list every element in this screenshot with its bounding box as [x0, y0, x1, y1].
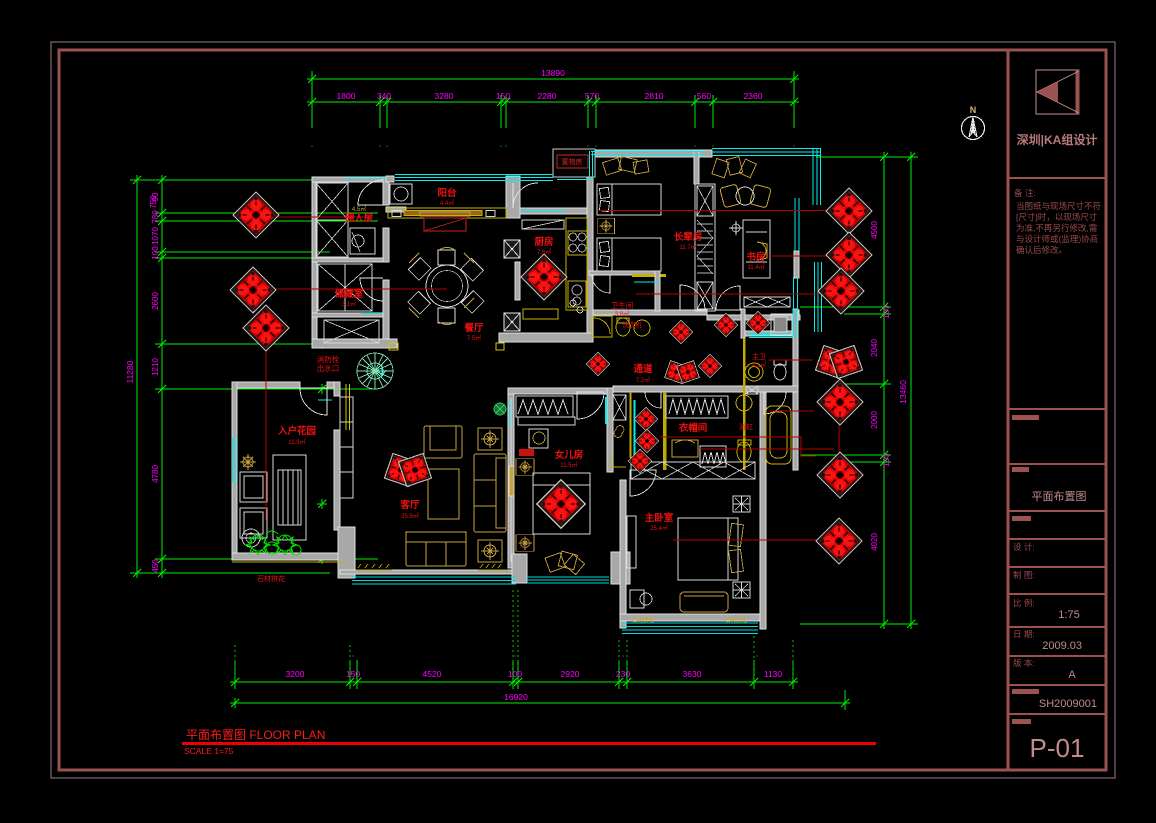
svg-text:置物房: 置物房 [562, 157, 583, 166]
svg-text:阳台: 阳台 [437, 187, 457, 199]
svg-text:版 本:: 版 本: [1013, 658, 1035, 668]
svg-text:2810: 2810 [645, 91, 664, 101]
svg-text:450: 450 [151, 559, 160, 573]
svg-text:150: 150 [346, 669, 360, 679]
svg-text:石材拼花: 石材拼花 [632, 616, 655, 624]
svg-text:长辈房: 长辈房 [674, 231, 703, 243]
svg-text:7.6㎡: 7.6㎡ [537, 248, 551, 256]
svg-text:石材拼花: 石材拼花 [257, 574, 285, 583]
svg-text:衣帽间: 衣帽间 [679, 422, 708, 434]
svg-text:深圳|KA组设计: 深圳|KA组设计 [1017, 132, 1098, 147]
svg-text:560: 560 [697, 91, 711, 101]
svg-text:当图纸与现场尺寸不符: 当图纸与现场尺寸不符 [1016, 201, 1101, 211]
svg-text:储藏室: 储藏室 [335, 288, 364, 300]
svg-text:100: 100 [508, 669, 522, 679]
svg-text:石材拼花: 石材拼花 [725, 616, 748, 624]
svg-text:主卫: 主卫 [752, 352, 766, 361]
svg-text:SCALE 1=75: SCALE 1=75 [184, 746, 234, 756]
svg-text:4020: 4020 [870, 533, 879, 551]
svg-text:厨房: 厨房 [534, 236, 553, 248]
svg-text:餐厅: 餐厅 [463, 322, 484, 334]
svg-text:A: A [1068, 669, 1076, 681]
svg-text:25.9㎡: 25.9㎡ [401, 512, 419, 520]
svg-text:1070: 1070 [151, 227, 160, 245]
svg-text:2920: 2920 [561, 669, 580, 679]
svg-text:客厅: 客厅 [399, 499, 420, 511]
svg-text:750: 750 [149, 195, 158, 209]
svg-text:出水口: 出水口 [317, 363, 340, 373]
svg-text:4500: 4500 [870, 221, 879, 239]
svg-text:780: 780 [151, 210, 160, 224]
svg-text:100: 100 [882, 453, 891, 467]
svg-text:为准,不再另行修改,需: 为准,不再另行修改,需 [1016, 223, 1097, 233]
svg-text:备 注:: 备 注: [1014, 188, 1036, 198]
svg-text:日 期:: 日 期: [1013, 629, 1035, 639]
svg-text:11280: 11280 [125, 360, 135, 383]
svg-text:2040: 2040 [870, 339, 879, 357]
svg-text:1:75: 1:75 [1058, 609, 1079, 621]
svg-text:11.7㎡: 11.7㎡ [679, 243, 696, 251]
svg-text:N: N [970, 105, 977, 115]
svg-text:佣人房: 佣人房 [344, 212, 374, 224]
svg-text:比 例:: 比 例: [1013, 598, 1035, 608]
svg-text:13460: 13460 [898, 380, 908, 404]
svg-text:230: 230 [616, 669, 630, 679]
svg-text:2000: 2000 [870, 411, 879, 429]
svg-text:4520: 4520 [423, 669, 442, 679]
svg-text:3.8㎡: 3.8㎡ [615, 310, 629, 318]
svg-text:570: 570 [585, 91, 599, 101]
svg-text:通道: 通道 [633, 363, 653, 375]
svg-text:4.5㎡: 4.5㎡ [352, 205, 366, 213]
svg-text:入户花园: 入户花园 [277, 425, 316, 437]
svg-text:3.1㎡: 3.1㎡ [342, 300, 356, 308]
svg-text:女儿房: 女儿房 [555, 449, 584, 461]
svg-text:340: 340 [377, 91, 391, 101]
svg-text:13890: 13890 [541, 68, 565, 78]
svg-text:2600: 2600 [151, 292, 160, 310]
svg-text:25.4㎡: 25.4㎡ [650, 524, 668, 532]
svg-text:[尺寸]时，以现场尺寸: [尺寸]时，以现场尺寸 [1016, 212, 1098, 222]
svg-text:150: 150 [496, 91, 510, 101]
svg-text:消防栓: 消防栓 [317, 354, 340, 364]
svg-text:洗衣机: 洗衣机 [622, 320, 642, 329]
svg-text:3630: 3630 [683, 669, 702, 679]
svg-text:平面布置图 FLOOR PLAN: 平面布置图 FLOOR PLAN [186, 728, 325, 742]
svg-text:11.9㎡: 11.9㎡ [288, 438, 305, 446]
svg-text:11.5㎡: 11.5㎡ [560, 461, 577, 469]
svg-text:浴缸: 浴缸 [739, 422, 753, 431]
svg-text:11.4㎡: 11.4㎡ [747, 263, 764, 271]
svg-text:4.1㎡: 4.1㎡ [752, 361, 766, 369]
svg-text:SH2009001: SH2009001 [1039, 698, 1097, 710]
svg-text:100: 100 [151, 246, 160, 260]
svg-text:制 图:: 制 图: [1013, 570, 1035, 580]
svg-text:4780: 4780 [151, 465, 160, 483]
svg-text:设 计:: 设 计: [1013, 542, 1035, 552]
svg-text:4.4㎡: 4.4㎡ [440, 199, 454, 207]
svg-text:2280: 2280 [538, 91, 557, 101]
svg-text:确认后修改。: 确认后修改。 [1016, 245, 1067, 255]
svg-text:16920: 16920 [504, 692, 528, 702]
svg-text:1800: 1800 [337, 91, 356, 101]
svg-text:卫生间: 卫生间 [611, 300, 634, 310]
svg-text:1130: 1130 [764, 669, 783, 679]
svg-text:2009.03: 2009.03 [1042, 640, 1082, 652]
svg-text:与设计师或(监理)协商: 与设计师或(监理)协商 [1016, 234, 1098, 244]
svg-text:100: 100 [882, 305, 891, 319]
svg-text:7.2㎡: 7.2㎡ [636, 376, 650, 384]
svg-text:3280: 3280 [435, 91, 454, 101]
svg-text:7.5㎡: 7.5㎡ [467, 334, 481, 342]
svg-text:主卧室: 主卧室 [645, 512, 674, 524]
svg-text:2360: 2360 [744, 91, 763, 101]
svg-text:书房: 书房 [746, 251, 765, 263]
svg-text:P-01: P-01 [1030, 733, 1085, 763]
svg-text:1210: 1210 [151, 358, 160, 376]
svg-text:平面布置图: 平面布置图 [1032, 490, 1087, 503]
svg-text:3200: 3200 [286, 669, 305, 679]
